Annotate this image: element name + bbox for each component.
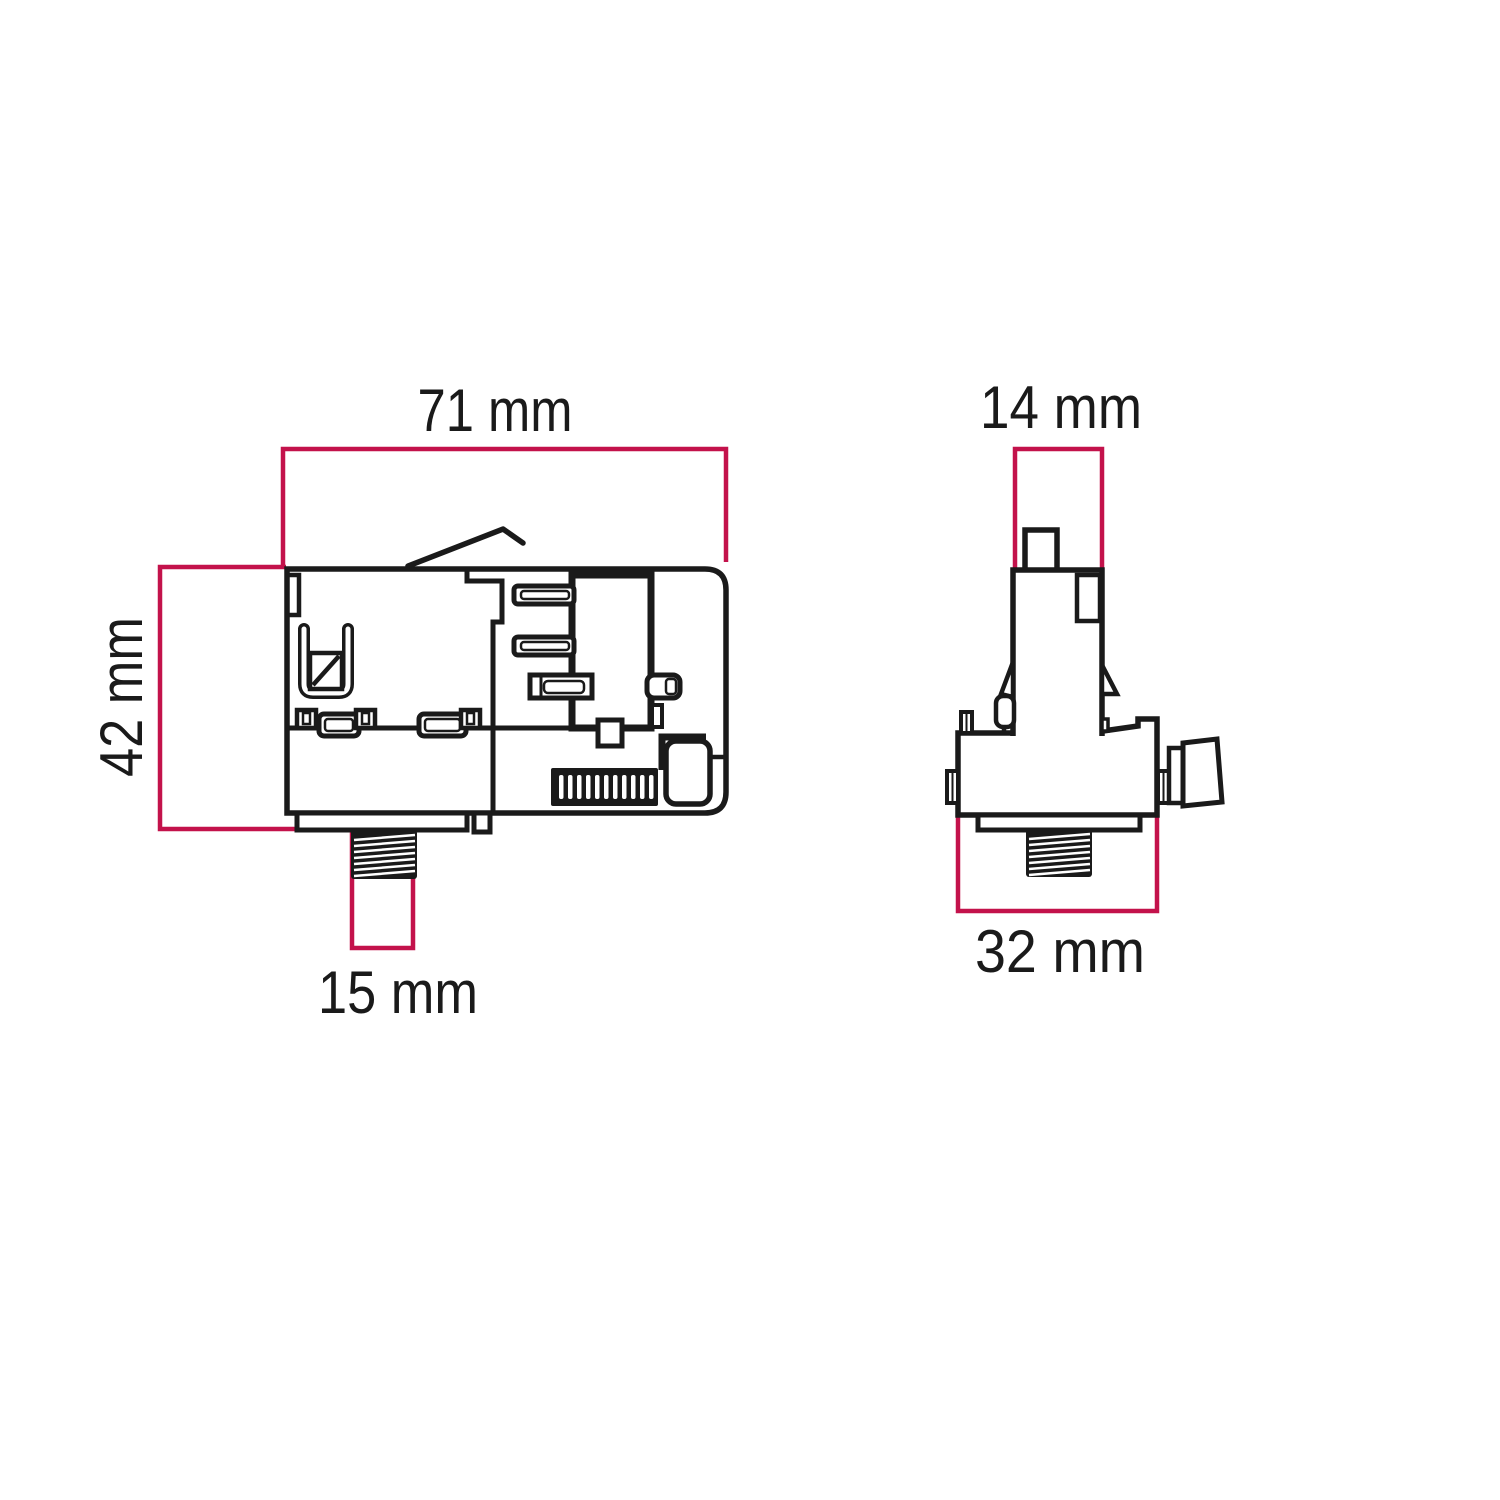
track-adapter-dimension-diagram: 71 mm 42 mm 15 mm 14 mm 32 mm	[0, 0, 1500, 1500]
threaded-stem-front	[1026, 829, 1092, 877]
label-side-stem-width: 15 mm	[318, 959, 478, 1026]
contact-prong-top-slot	[521, 591, 569, 599]
contact-housing-body	[572, 575, 651, 728]
side-view-drawing	[287, 529, 726, 879]
clip-small-slot	[362, 713, 369, 724]
release-lever	[408, 529, 523, 566]
neck-notch	[1077, 575, 1100, 621]
label-front-top-width: 14 mm	[980, 374, 1142, 441]
contact-prong-middle-slot	[521, 642, 569, 650]
rib-slit	[631, 775, 636, 799]
rib-slit	[604, 775, 609, 799]
rib-slit	[595, 775, 600, 799]
clip-small-slot	[467, 713, 474, 724]
rib-slit	[559, 775, 564, 799]
bottom-tab	[474, 813, 490, 832]
ribbed-terminal	[551, 768, 658, 806]
neck-top-tab	[1025, 530, 1057, 571]
neck-right-fin	[1102, 665, 1117, 694]
bottom-flange	[297, 813, 467, 830]
contact-prong-lower-slot	[544, 681, 584, 693]
rib-slit	[649, 775, 654, 799]
front-view-drawing	[947, 530, 1222, 877]
corner-slot-opening	[666, 741, 710, 804]
label-side-width: 71 mm	[418, 377, 573, 444]
threaded-stem-side	[351, 830, 417, 879]
dimension-line-42mm	[160, 567, 303, 829]
contact-prong-right-slot	[666, 679, 676, 694]
neck-left-fin	[1001, 662, 1013, 697]
side-connector-outer	[1183, 739, 1222, 806]
neck-right-tick	[1102, 719, 1108, 731]
neck-left-tab	[996, 696, 1014, 727]
housing-lower-tab	[652, 705, 662, 727]
rib-slit	[568, 775, 573, 799]
label-front-base-width: 32 mm	[975, 918, 1145, 985]
rib-slit	[622, 775, 627, 799]
front-bottom-flange	[978, 815, 1140, 830]
label-side-height: 42 mm	[88, 617, 155, 777]
rib-slit	[577, 775, 582, 799]
technical-drawing-page: 71 mm 42 mm 15 mm 14 mm 32 mm	[0, 0, 1500, 1500]
rib-slit	[613, 775, 618, 799]
rib-slit	[640, 775, 645, 799]
housing-bottom-square	[598, 720, 622, 746]
dimension-line-71mm	[283, 449, 726, 567]
clip-small-slot	[303, 713, 310, 724]
rib-slit	[586, 775, 591, 799]
